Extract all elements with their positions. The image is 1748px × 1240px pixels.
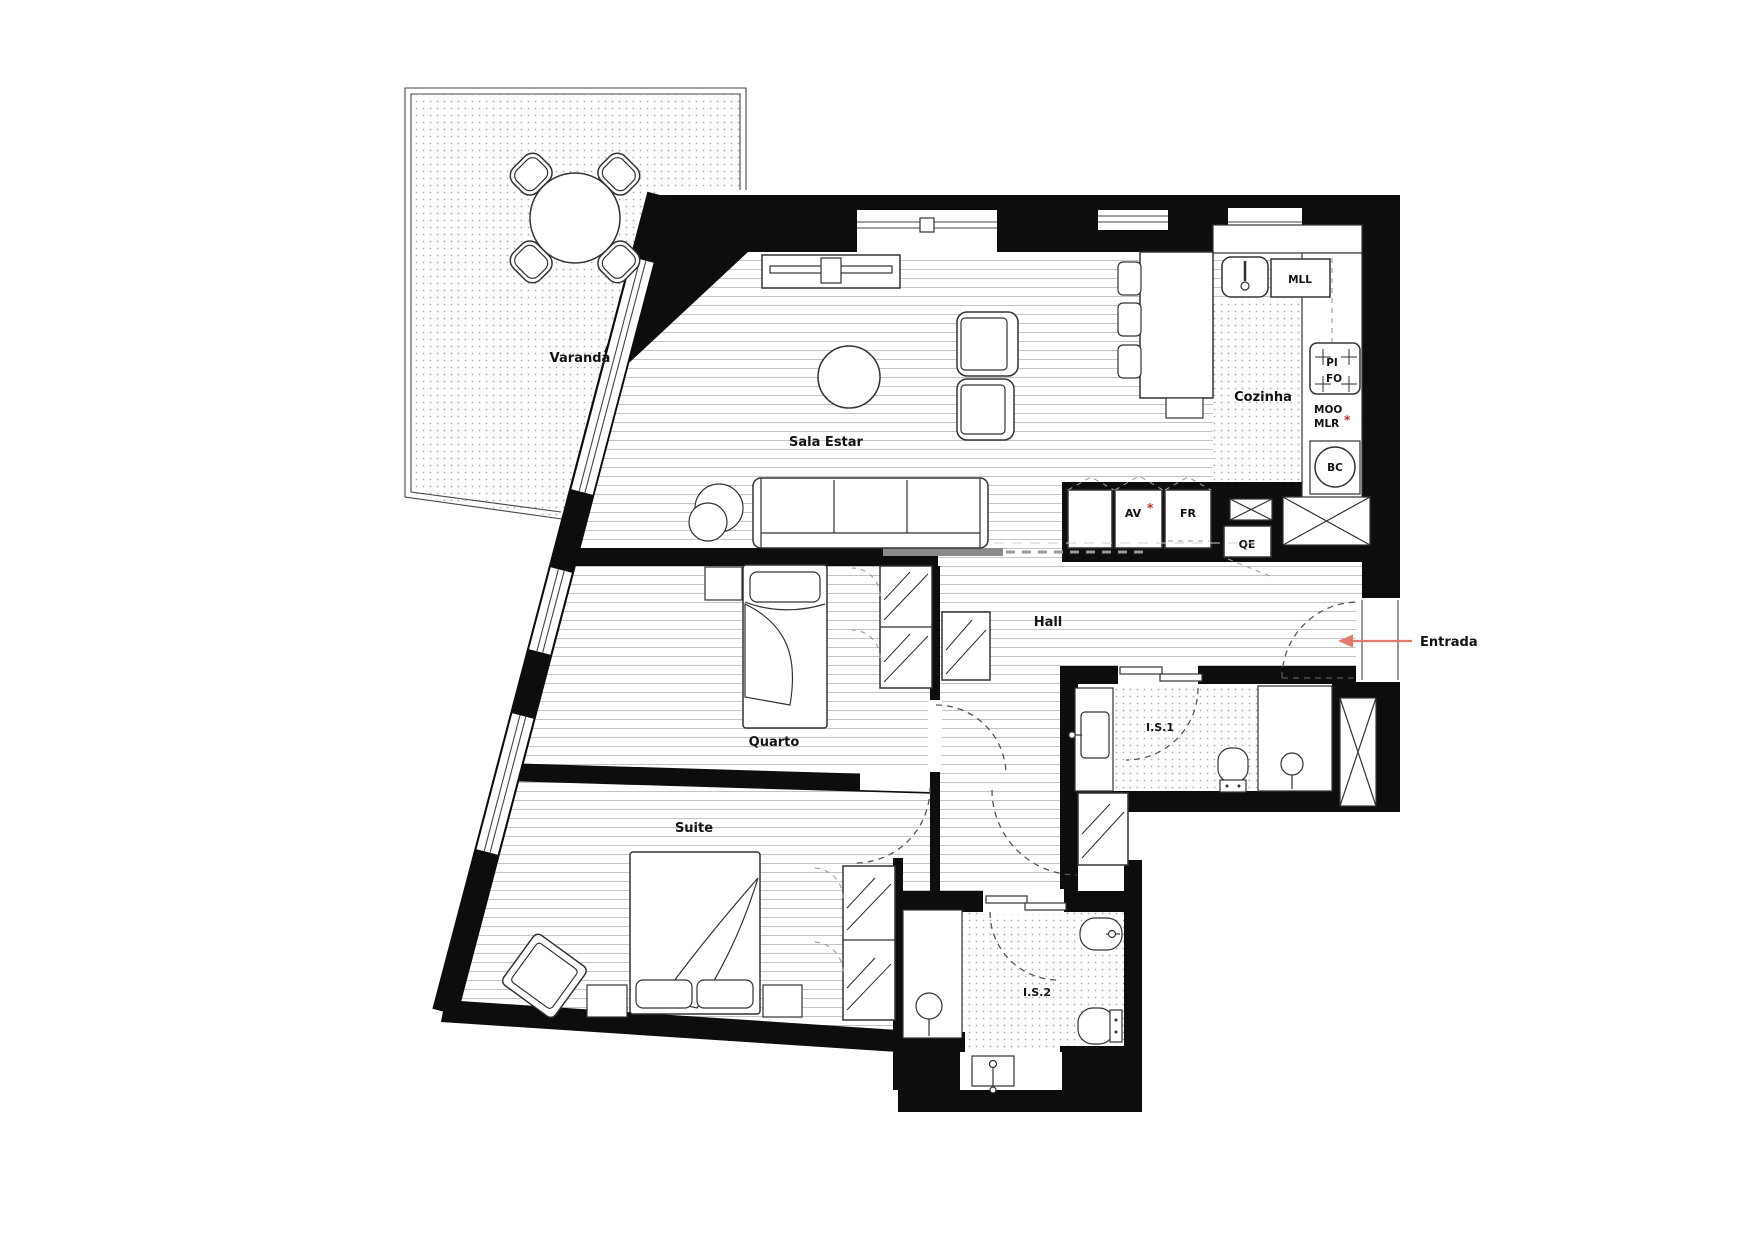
label-suite: Suite — [675, 821, 713, 836]
label-hall: Hall — [1034, 615, 1063, 630]
label-quarto: Quarto — [749, 735, 800, 750]
sofa — [753, 478, 988, 548]
armchair — [957, 312, 1018, 376]
sliding-door — [1120, 667, 1162, 674]
water-heater-label: BC — [1327, 462, 1343, 474]
washer-label: MLR — [1314, 418, 1339, 430]
kitchen-counter-top — [1213, 225, 1362, 253]
cooktop-label: PI — [1326, 357, 1338, 369]
washer-asterisk: * — [1344, 413, 1351, 427]
av-asterisk: * — [1147, 501, 1154, 515]
closet-corridor — [1078, 793, 1128, 865]
washbasin-icon — [1069, 688, 1113, 791]
label-is2: I.S.2 — [1023, 986, 1051, 999]
shower-icon — [903, 910, 962, 1038]
sliding-door — [986, 896, 1027, 903]
stool — [1118, 303, 1141, 336]
stool — [1118, 345, 1141, 378]
microwave-label: MOO — [1314, 404, 1342, 416]
fridge-label: FR — [1180, 507, 1197, 520]
av-label: AV — [1125, 507, 1142, 520]
toilet-icon — [1218, 748, 1248, 792]
dishwasher-label: MLL — [1288, 274, 1312, 286]
balcony-table — [530, 173, 620, 263]
floor-plan-drawing: MLL PI FO MOO MLR * BC AV * FR — [0, 0, 1748, 1240]
duct-shaft-icon — [1340, 698, 1376, 806]
closet-hall — [942, 612, 990, 680]
label-is1: I.S.1 — [1146, 721, 1174, 734]
shower-icon — [1258, 686, 1332, 791]
nightstand — [587, 985, 627, 1017]
stool — [1118, 262, 1141, 295]
kitchen-island — [1140, 252, 1213, 398]
duct-shaft-icon — [1283, 497, 1370, 545]
bidet-icon — [1080, 918, 1122, 950]
nightstand — [763, 985, 802, 1017]
armchair — [957, 379, 1014, 440]
oven-label: FO — [1326, 373, 1342, 385]
tv-console — [762, 255, 900, 288]
label-entrada: Entrada — [1420, 635, 1478, 650]
duct-shaft-icon — [1230, 499, 1272, 520]
label-varanda: Varanda — [550, 351, 611, 366]
electrical-panel-label: QE — [1239, 538, 1256, 551]
nightstand — [705, 567, 742, 600]
single-bed — [743, 565, 827, 728]
toilet-icon — [1078, 1008, 1122, 1044]
sink-icon — [1222, 257, 1268, 297]
coffee-table — [818, 346, 880, 408]
double-bed — [630, 852, 760, 1014]
label-cozinha: Cozinha — [1234, 390, 1292, 405]
label-sala-estar: Sala Estar — [789, 435, 863, 450]
floor-plan-page: MLL PI FO MOO MLR * BC AV * FR — [0, 0, 1748, 1240]
washbasin-icon — [960, 1052, 1062, 1093]
